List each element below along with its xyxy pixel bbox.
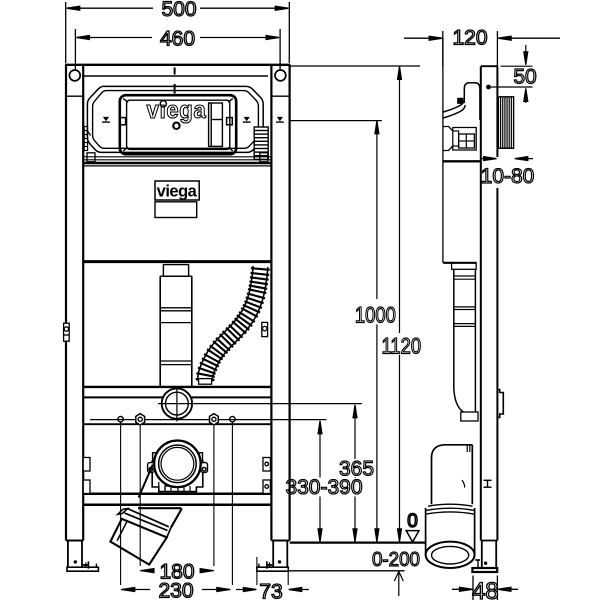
svg-text:48: 48 <box>472 578 499 600</box>
svg-text:230: 230 <box>158 579 193 600</box>
svg-text:1000: 1000 <box>355 303 396 328</box>
svg-text:73: 73 <box>259 581 282 600</box>
svg-text:500: 500 <box>161 0 196 21</box>
svg-text:viega: viega <box>157 183 198 201</box>
svg-text:120: 120 <box>452 26 487 49</box>
svg-text:1120: 1120 <box>382 334 422 359</box>
svg-text:50: 50 <box>513 65 536 88</box>
svg-text:vıega: vıega <box>147 96 207 123</box>
svg-text:330-390: 330-390 <box>285 476 362 499</box>
svg-text:10-80: 10-80 <box>481 165 535 188</box>
svg-text:460: 460 <box>160 28 195 51</box>
svg-text:0-200: 0-200 <box>372 549 420 571</box>
svg-text:0: 0 <box>407 511 418 532</box>
